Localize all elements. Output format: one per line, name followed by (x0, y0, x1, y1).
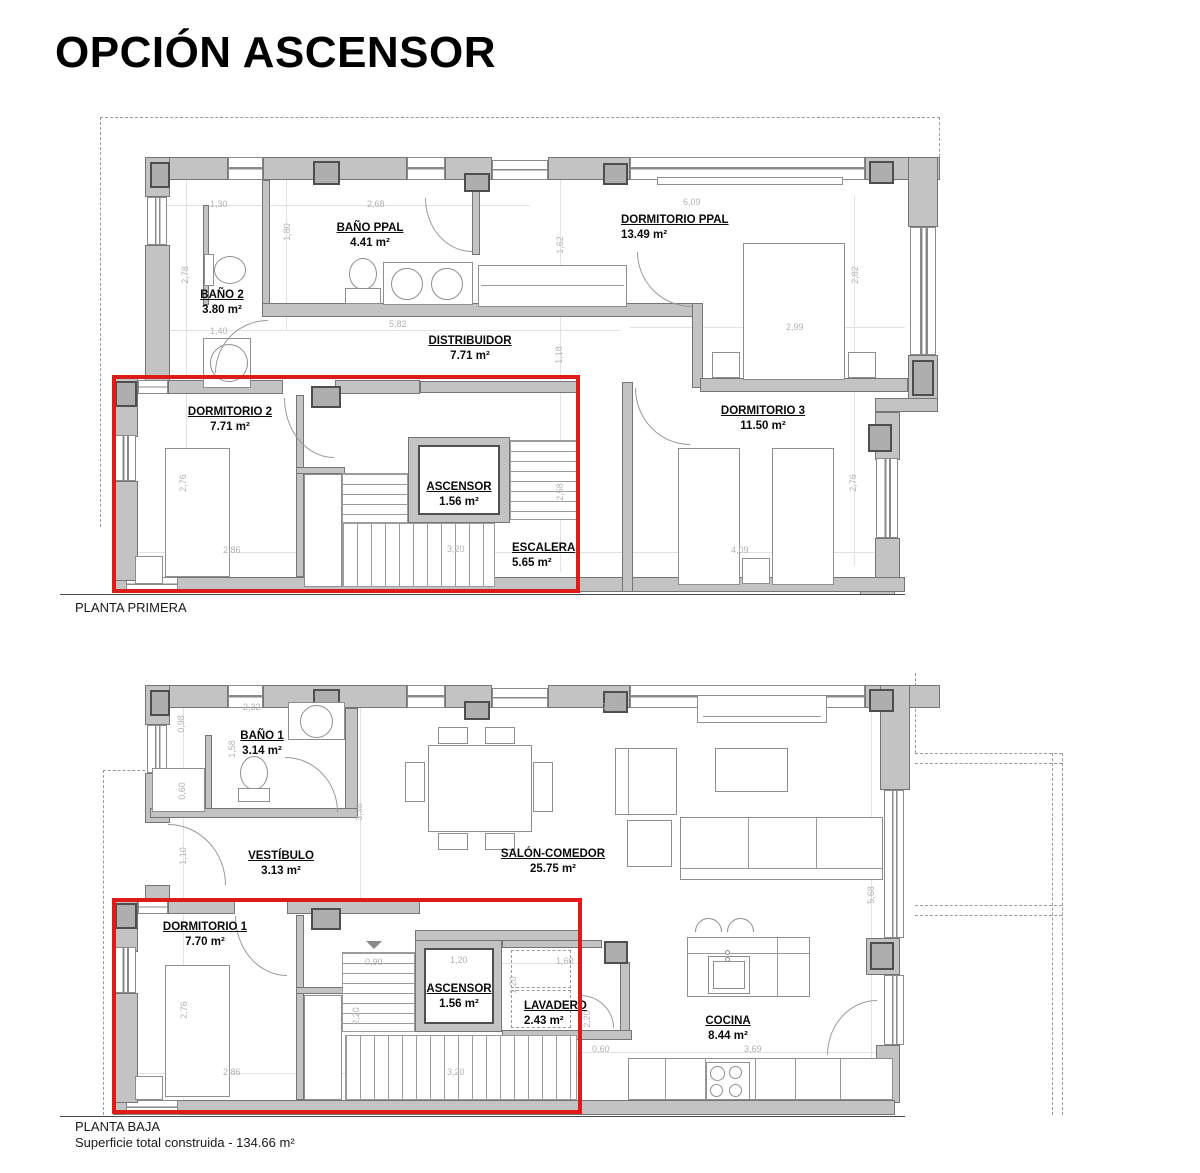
window (407, 685, 445, 708)
floor-plan-sheet: OPCIÓN ASCENSOR (0, 0, 1200, 1173)
chair (405, 762, 425, 802)
dimension-line (360, 700, 361, 898)
boundary-dashed-line (915, 915, 1062, 916)
island-line (688, 953, 809, 954)
toilet (240, 756, 268, 790)
tv-sideboard (697, 695, 827, 723)
dimension-label: 2,32 (243, 702, 261, 712)
faucet (725, 950, 730, 955)
chair (533, 762, 553, 812)
dimension-label: 1,10 (178, 847, 188, 865)
room-label-vestibulo: VESTÍBULO3.13 m² (221, 849, 341, 879)
door-arc (827, 1000, 877, 1055)
chair (438, 833, 468, 850)
floor-caption: PLANTA BAJA (75, 1119, 160, 1134)
boundary-dashed-line (915, 905, 1062, 906)
boundary-dashed-line (103, 770, 104, 1115)
room-label-cocina: COCINA8.44 m² (668, 1014, 788, 1044)
room-label-bano1: BAÑO 13.14 m² (202, 729, 322, 759)
hob-burner (710, 1066, 725, 1081)
column (150, 690, 170, 716)
column (604, 941, 628, 964)
counter-line (795, 1059, 796, 1099)
dimension-label: 3,38 (354, 803, 364, 821)
room-label-salon-comedor: SALÓN-COMEDOR25.75 m² (483, 847, 623, 877)
dimension-label: 3,69 (744, 1044, 762, 1054)
wall (345, 708, 358, 815)
chair (438, 727, 468, 744)
coffee-table (715, 748, 788, 792)
dining-table (428, 745, 532, 832)
sofa-seat-line (816, 818, 817, 868)
tv-sideboard-line (703, 716, 821, 717)
boundary-dashed-line (1062, 753, 1063, 1115)
chair (485, 727, 515, 744)
window (492, 688, 548, 708)
hob-burner (729, 1084, 742, 1097)
kitchen-counter (628, 1058, 893, 1100)
column (869, 689, 894, 712)
sofa-front-line (681, 868, 882, 869)
bar-stool (695, 918, 722, 932)
window (884, 975, 904, 1045)
door-arc (285, 757, 338, 812)
sofa (680, 817, 883, 880)
total-area-caption: Superficie total construida - 134.66 m² (75, 1135, 295, 1150)
column (464, 701, 490, 720)
counter-line (665, 1059, 666, 1099)
floor-plan-planta-baja: 2,32 0,98 1,58 0,60 1,10 3,38 7,59 5,68 … (0, 0, 1200, 1173)
window (884, 790, 904, 938)
boundary-dashed-line (915, 763, 1062, 764)
sofa-seat-line (748, 818, 749, 868)
counter-line (840, 1059, 841, 1099)
hob-burner (729, 1066, 742, 1079)
dimension-label: 0,60 (177, 782, 187, 800)
hob-burner (710, 1084, 723, 1097)
faucet (725, 957, 730, 962)
side-table (627, 820, 672, 867)
bar-stool (727, 918, 754, 932)
door-arc (168, 824, 226, 885)
toilet-tank (238, 788, 270, 802)
dimension-label: 0,60 (592, 1044, 610, 1054)
armchair (615, 748, 677, 815)
island-line (777, 938, 778, 996)
armchair-line (628, 749, 629, 814)
kitchen-sink-basin (713, 961, 745, 989)
dimension-label: 0,98 (176, 715, 186, 733)
boundary-dashed-line (915, 753, 1062, 754)
highlight-box-elevator-lower (112, 898, 582, 1114)
dimension-label: 5,68 (866, 886, 876, 904)
counter-line (755, 1059, 756, 1099)
boundary-dashed-line (1052, 753, 1053, 1115)
boundary-dashed-line (103, 770, 145, 771)
caption-rule (60, 1116, 905, 1117)
column (870, 942, 894, 970)
window (147, 725, 167, 773)
dimension-label: 7,59 (602, 702, 620, 712)
